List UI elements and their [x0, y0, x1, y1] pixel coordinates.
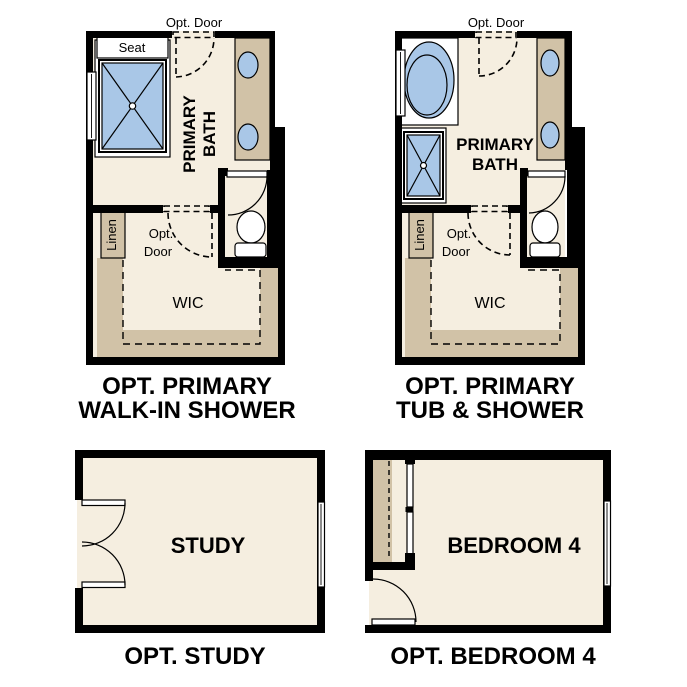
- door-leaf: [372, 619, 415, 625]
- opt-door-label: Opt. Door: [468, 15, 525, 30]
- wall-segment: [578, 268, 585, 365]
- linen-label: Linen: [412, 219, 427, 251]
- wall-segment: [75, 625, 325, 633]
- toilet-icon: [235, 211, 266, 257]
- floorplan-bedroom-4: BEDROOM 4: [365, 450, 613, 636]
- door-leaf: [528, 171, 565, 177]
- caption-tub-and-shower: OPT. PRIMARY TUB & SHOWER: [360, 375, 620, 423]
- floorplan-walk-in-shower: Opt. Door Seat PRIMARYBATH Linen Opt. Do…: [84, 13, 288, 366]
- wall-segment: [75, 588, 83, 633]
- wall-segment: [508, 205, 520, 213]
- room-label-wic: WIC: [474, 295, 505, 312]
- wall-segment: [218, 168, 225, 263]
- shower-drain-icon: [421, 163, 427, 169]
- caption-walk-in-shower: OPT. PRIMARY WALK-IN SHOWER: [57, 375, 317, 423]
- caption-line: TUB & SHOWER: [360, 399, 620, 423]
- closet-door-panel: [407, 464, 413, 507]
- wall-segment: [278, 268, 285, 365]
- toilet-bowl: [237, 211, 265, 243]
- bathtub-icon: [401, 38, 458, 125]
- toilet-tank: [530, 243, 560, 257]
- toilet-icon: [530, 211, 560, 257]
- room-label-bedroom-4: BEDROOM 4: [447, 533, 581, 558]
- wall-segment: [86, 357, 285, 365]
- caption-bedroom-4: OPT. BEDROOM 4: [363, 645, 623, 669]
- caption-line: OPT. STUDY: [65, 645, 325, 669]
- opt-door-label: Door: [442, 244, 471, 259]
- opt-door-label: Opt.: [149, 226, 174, 241]
- toilet-tank: [235, 243, 266, 257]
- room-label-study: STUDY: [171, 533, 246, 558]
- floorplan-study: STUDY: [72, 450, 328, 636]
- wall-segment: [365, 625, 611, 633]
- wall-segment: [395, 205, 471, 213]
- wall-segment: [86, 205, 163, 213]
- wall-segment: [395, 357, 585, 365]
- wall-segment: [520, 168, 527, 263]
- caption-study: OPT. STUDY: [65, 645, 325, 669]
- shower-drain-icon: [129, 103, 135, 109]
- wall-segment: [75, 450, 83, 500]
- wic-shelf-right: [560, 268, 578, 357]
- wall-segment: [270, 127, 285, 170]
- seat-label: Seat: [119, 40, 146, 55]
- wall-segment: [367, 450, 611, 460]
- door-leaf: [82, 582, 125, 588]
- caption-line: OPT. BEDROOM 4: [363, 645, 623, 669]
- wall-segment: [210, 205, 220, 213]
- wall-segment: [520, 168, 528, 176]
- room-label-wic: WIC: [172, 295, 203, 312]
- wall-segment: [406, 507, 414, 512]
- caption-line: OPT. PRIMARY: [57, 375, 317, 399]
- wall-segment: [373, 562, 415, 570]
- caption-line: OPT. PRIMARY: [360, 375, 620, 399]
- closet-door-panel: [407, 512, 413, 555]
- door-leaf: [82, 500, 125, 506]
- wall-segment: [520, 257, 585, 268]
- wall-segment: [395, 31, 475, 38]
- wall-segment: [565, 31, 572, 127]
- sink-icon: [238, 52, 258, 78]
- floorplan-tub-and-shower: Opt. Door PRIMARYBATH Linen Opt. Door WI…: [393, 13, 589, 366]
- wall-segment: [215, 31, 275, 38]
- wall-segment: [86, 31, 172, 38]
- wall-segment: [567, 170, 585, 268]
- opt-door-label: Opt. Door: [166, 15, 223, 30]
- door-leaf: [227, 171, 267, 177]
- wall-segment: [270, 31, 275, 127]
- opt-door-label: Door: [144, 244, 173, 259]
- wic-shelf-right: [260, 268, 278, 357]
- floorplan-options-sheet: Opt. Door Seat PRIMARYBATH Linen Opt. Do…: [0, 0, 687, 687]
- sink-icon: [541, 50, 559, 76]
- wall-segment: [218, 257, 285, 268]
- opt-door-label: Opt.: [447, 226, 472, 241]
- sink-icon: [238, 124, 258, 150]
- wall-segment: [267, 170, 285, 268]
- linen-label: Linen: [104, 219, 119, 251]
- wall-segment: [75, 450, 325, 458]
- wall-segment: [365, 450, 373, 581]
- wall-segment: [565, 127, 585, 170]
- wall-segment: [517, 31, 572, 38]
- toilet-bowl: [532, 211, 558, 243]
- caption-line: WALK-IN SHOWER: [57, 399, 317, 423]
- sink-icon: [541, 122, 559, 148]
